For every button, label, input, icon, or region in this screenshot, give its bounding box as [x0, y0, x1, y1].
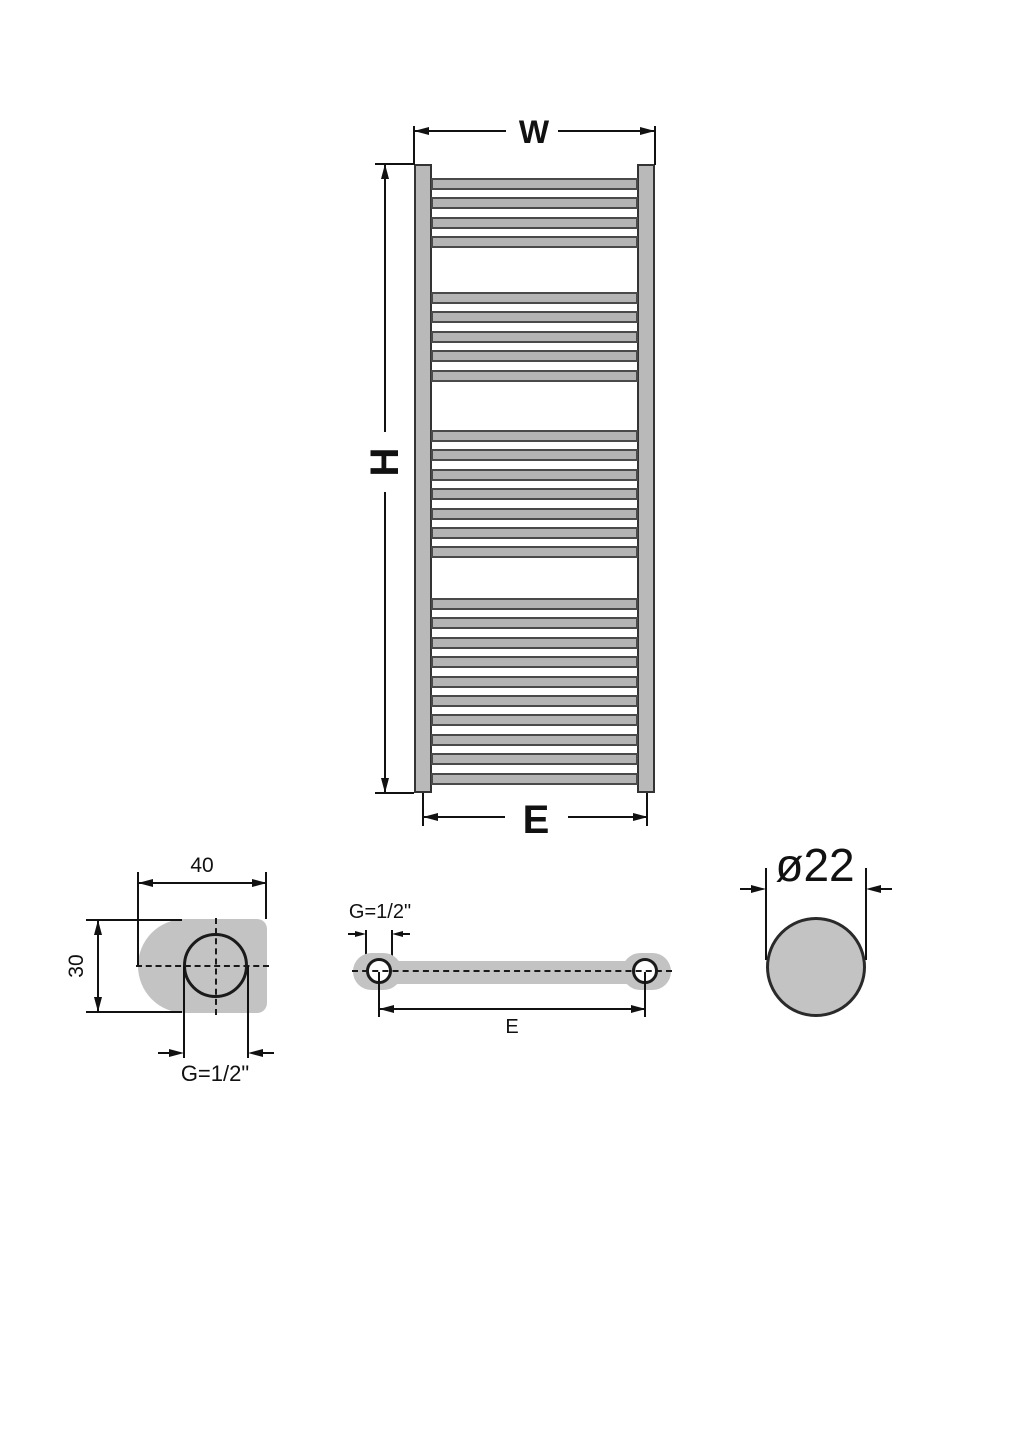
- tube-diameter-label: ø22: [755, 838, 875, 892]
- tube-arrow-right: [866, 885, 881, 893]
- tube-cross-section-circle: [766, 917, 866, 1017]
- tube-ext-right: [865, 868, 867, 960]
- tube-ext-left: [765, 868, 767, 960]
- tube-arrow-left: [751, 885, 766, 893]
- drawing-canvas: W H E: [0, 0, 1024, 1448]
- tube-detail: ø22: [0, 0, 1024, 1448]
